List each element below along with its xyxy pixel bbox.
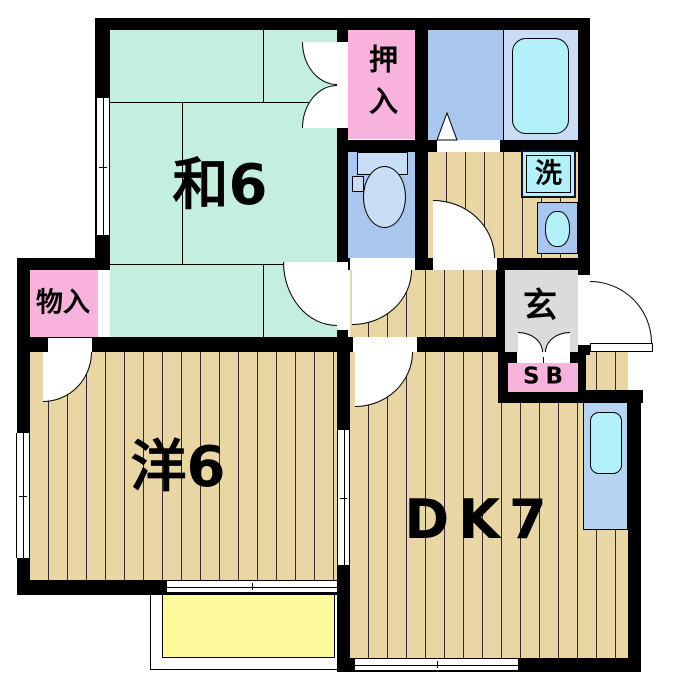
entrance-door-swing: [590, 281, 652, 343]
tatami-line: [263, 30, 264, 103]
wash-basin-bowl: [545, 211, 570, 247]
floor-plan: 洗 和6 洋6 DK7 押入 物入 玄 SB: [0, 0, 673, 699]
wall-toilet-right: [415, 152, 428, 258]
washing-machine: 洗: [521, 150, 576, 198]
wall-dk-right: [628, 392, 641, 672]
washitsu-doorway: [337, 262, 348, 330]
kitchen-sink: [590, 412, 622, 474]
balcony: [162, 590, 335, 658]
label-shoebox: SB: [523, 366, 569, 389]
wall-balcony-right: [337, 570, 350, 670]
label-genkan: 玄: [523, 289, 557, 323]
window-western-left: [16, 433, 30, 558]
oshiire-doorway: [337, 42, 348, 128]
tatami-line: [263, 265, 264, 337]
dk-doorway: [353, 337, 417, 352]
entrance-doorway: [578, 275, 590, 345]
entrance-door-leaf: [590, 343, 653, 352]
bathtub: [512, 38, 569, 134]
toilet-doorway: [350, 258, 415, 270]
label-dk: DK7: [404, 493, 555, 547]
label-western: 洋6: [131, 440, 226, 496]
toilet-cistern: [352, 176, 364, 192]
label-oshiire: 押入: [367, 44, 396, 128]
washing-machine-label: 洗: [535, 161, 562, 188]
bath-divider-line: [503, 30, 504, 140]
window-washitsu-left: [96, 98, 110, 235]
bath-doorway: [437, 140, 500, 152]
tatami-line: [110, 102, 337, 103]
toilet-bowl: [363, 166, 406, 228]
wall-genkan-left: [496, 262, 505, 352]
washroom-doorway: [433, 258, 497, 270]
window-western-balcony: [167, 580, 337, 593]
label-washitsu: 和6: [173, 158, 268, 214]
monoire-doorway: [48, 338, 92, 352]
label-monoire: 物入: [36, 290, 90, 317]
wall-oshiire-bath: [415, 18, 428, 152]
bath-door-marker: [436, 112, 458, 141]
window-western-dk: [337, 430, 350, 565]
window-dk-bottom: [355, 658, 518, 671]
wall-monoire-top: [17, 258, 110, 270]
wall-right-upper: [578, 18, 590, 275]
